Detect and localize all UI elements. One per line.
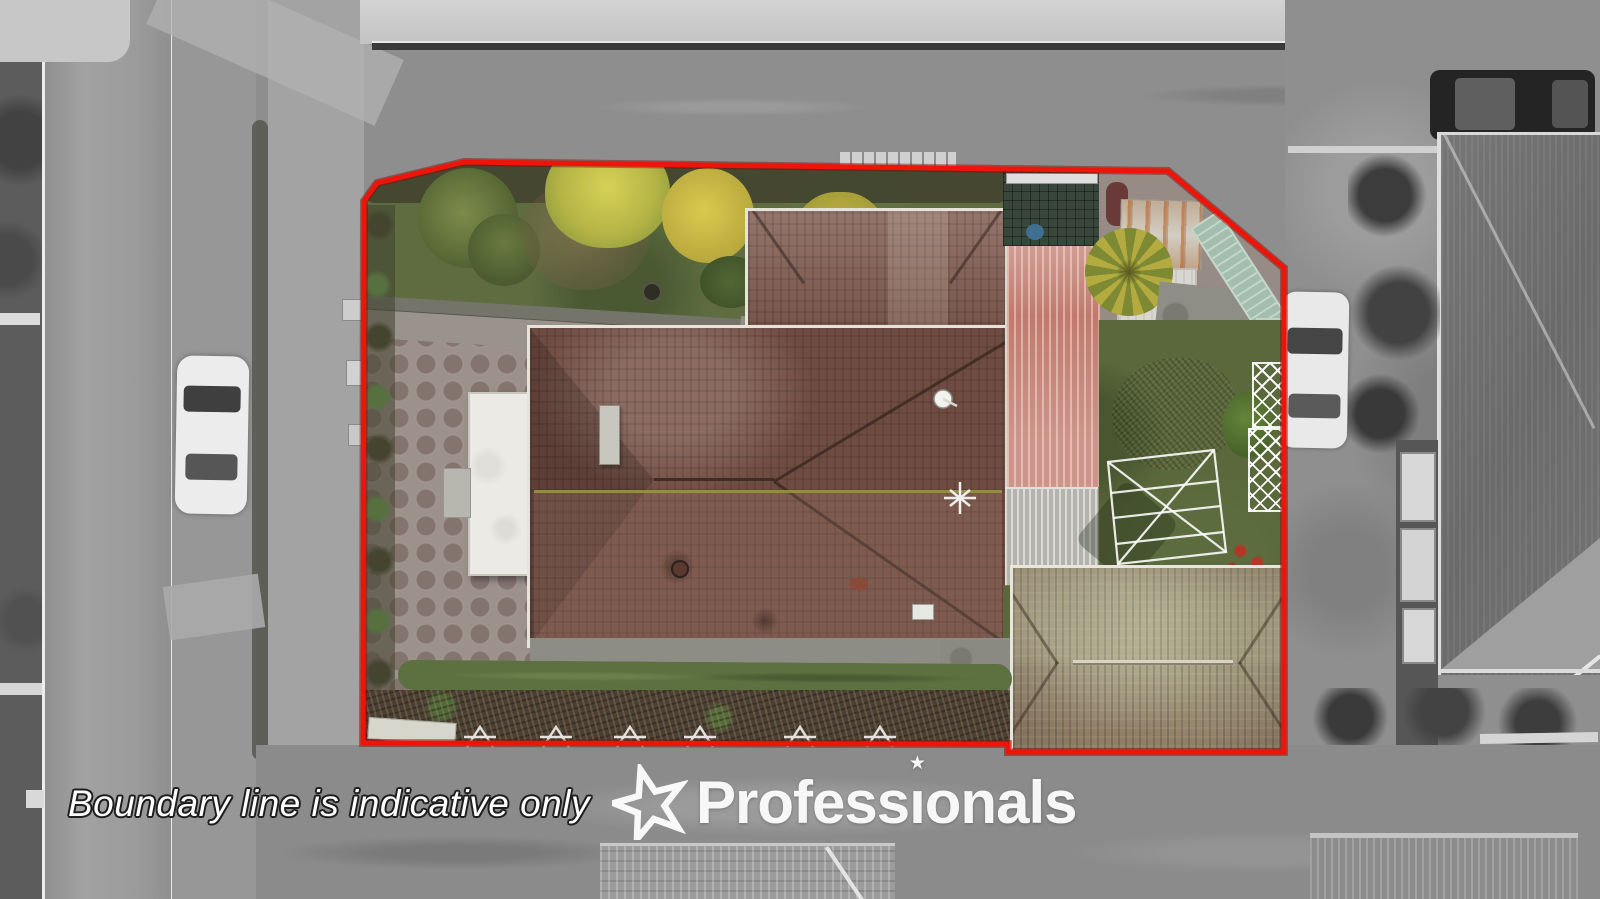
roof-vent [912, 604, 934, 620]
chimney-pot [671, 560, 689, 578]
road-marking [0, 313, 40, 325]
neighbor-trees [1348, 128, 1440, 464]
white-car-street [175, 355, 250, 514]
carport-roof [468, 392, 531, 576]
neighbor-window [1402, 608, 1436, 664]
van-window [1552, 80, 1588, 128]
chimney [599, 405, 620, 465]
rear-roof-center [600, 843, 895, 899]
roof-eave [1441, 669, 1600, 673]
bush-golden [662, 168, 754, 263]
boundary-disclaimer-text: Boundary line is indicative only [68, 783, 590, 825]
soot-patch [752, 608, 778, 634]
corner-pavement [0, 0, 130, 62]
white-fence-piece [1480, 732, 1598, 744]
aerial-property-photo: Boundary line is indicative only Profess… [0, 0, 1600, 899]
garage-ridge [1073, 660, 1233, 665]
garage-hip [1238, 661, 1287, 747]
white-car-neighbor [1280, 291, 1350, 448]
blue-tub [1026, 224, 1044, 240]
patio-rail [1006, 173, 1098, 184]
road-marking [0, 683, 42, 695]
rust-patch [850, 578, 868, 590]
rear-roof-gable [825, 846, 875, 899]
wing-hip-right [949, 208, 1004, 284]
van-window [1455, 78, 1515, 130]
valley-up [773, 336, 1009, 483]
garden-pot [642, 282, 662, 302]
road-marking [26, 790, 44, 808]
grass-strip [398, 660, 1012, 694]
house-main-roof [527, 325, 1009, 648]
trailer-frame [838, 152, 956, 168]
palm-center [1117, 260, 1141, 284]
neighbor-window [1400, 528, 1436, 602]
neighbor-window [1400, 452, 1436, 522]
rear-roof-right [1310, 833, 1578, 899]
wing-hip-left [750, 208, 805, 284]
car-windshield [183, 386, 240, 413]
logo-wordmark: Profess★ıonals [696, 768, 1077, 837]
neighbor-roof [1437, 132, 1600, 675]
street-road [42, 0, 175, 899]
left-berm [0, 0, 42, 899]
professionals-logo: Profess★ıonals [612, 762, 1077, 842]
garden-bed [364, 690, 1010, 745]
garage-roof [1010, 565, 1287, 756]
car-rear-window [185, 454, 237, 481]
logo-i-star-icon: ★ [909, 752, 925, 775]
car-windshield [1287, 328, 1342, 355]
main-ridge [654, 478, 774, 481]
hedge-strip [252, 120, 268, 760]
letterbox [342, 299, 362, 321]
garage-hip [1010, 661, 1059, 747]
car-rear-window [1288, 394, 1340, 419]
trellis [1252, 362, 1288, 428]
letterbox [346, 360, 366, 386]
carport-step [443, 468, 471, 518]
trellis [1248, 428, 1288, 512]
left-border-shrubs [363, 205, 395, 705]
star-icon [612, 764, 688, 840]
